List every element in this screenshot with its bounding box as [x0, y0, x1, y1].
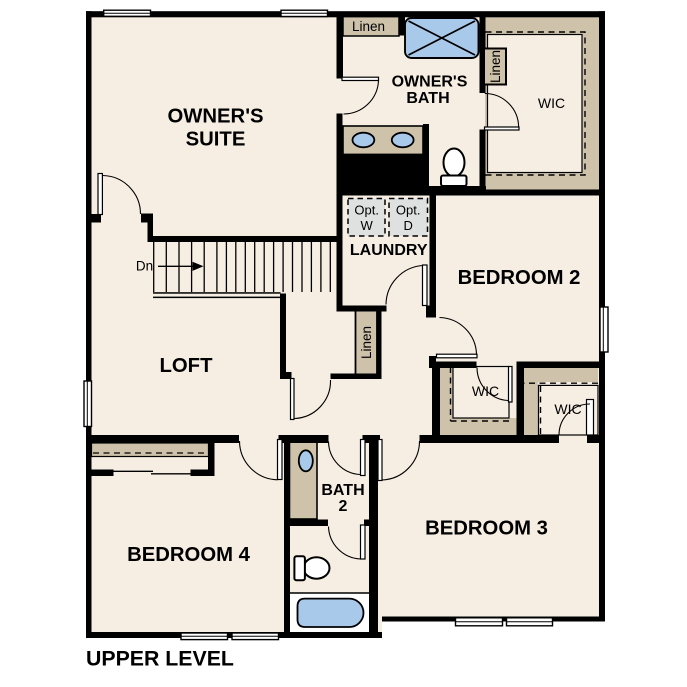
svg-text:WIC: WIC: [538, 95, 565, 111]
svg-text:BEDROOM 3: BEDROOM 3: [425, 518, 548, 540]
svg-text:Dn: Dn: [136, 259, 153, 274]
svg-text:W: W: [361, 218, 374, 233]
svg-text:Linen: Linen: [352, 19, 385, 34]
svg-text:Linen: Linen: [488, 50, 503, 83]
svg-text:BEDROOM 4: BEDROOM 4: [127, 544, 251, 566]
svg-text:UPPER LEVEL: UPPER LEVEL: [86, 647, 234, 671]
svg-text:BEDROOM 2: BEDROOM 2: [458, 267, 581, 289]
svg-text:2: 2: [339, 498, 348, 515]
svg-text:Opt.: Opt.: [354, 203, 379, 218]
svg-text:OWNER'S: OWNER'S: [392, 74, 468, 91]
svg-text:BATH: BATH: [406, 90, 449, 107]
svg-text:D: D: [404, 218, 413, 233]
svg-text:WIC: WIC: [554, 401, 581, 417]
svg-text:BATH: BATH: [321, 482, 364, 499]
svg-text:LOFT: LOFT: [160, 355, 214, 377]
svg-text:OWNER'S: OWNER'S: [167, 106, 263, 128]
svg-text:WIC: WIC: [472, 383, 499, 399]
svg-text:SUITE: SUITE: [186, 129, 246, 151]
svg-text:LAUNDRY: LAUNDRY: [350, 242, 428, 259]
svg-text:Opt.: Opt.: [396, 203, 421, 218]
svg-text:Linen: Linen: [359, 326, 374, 359]
